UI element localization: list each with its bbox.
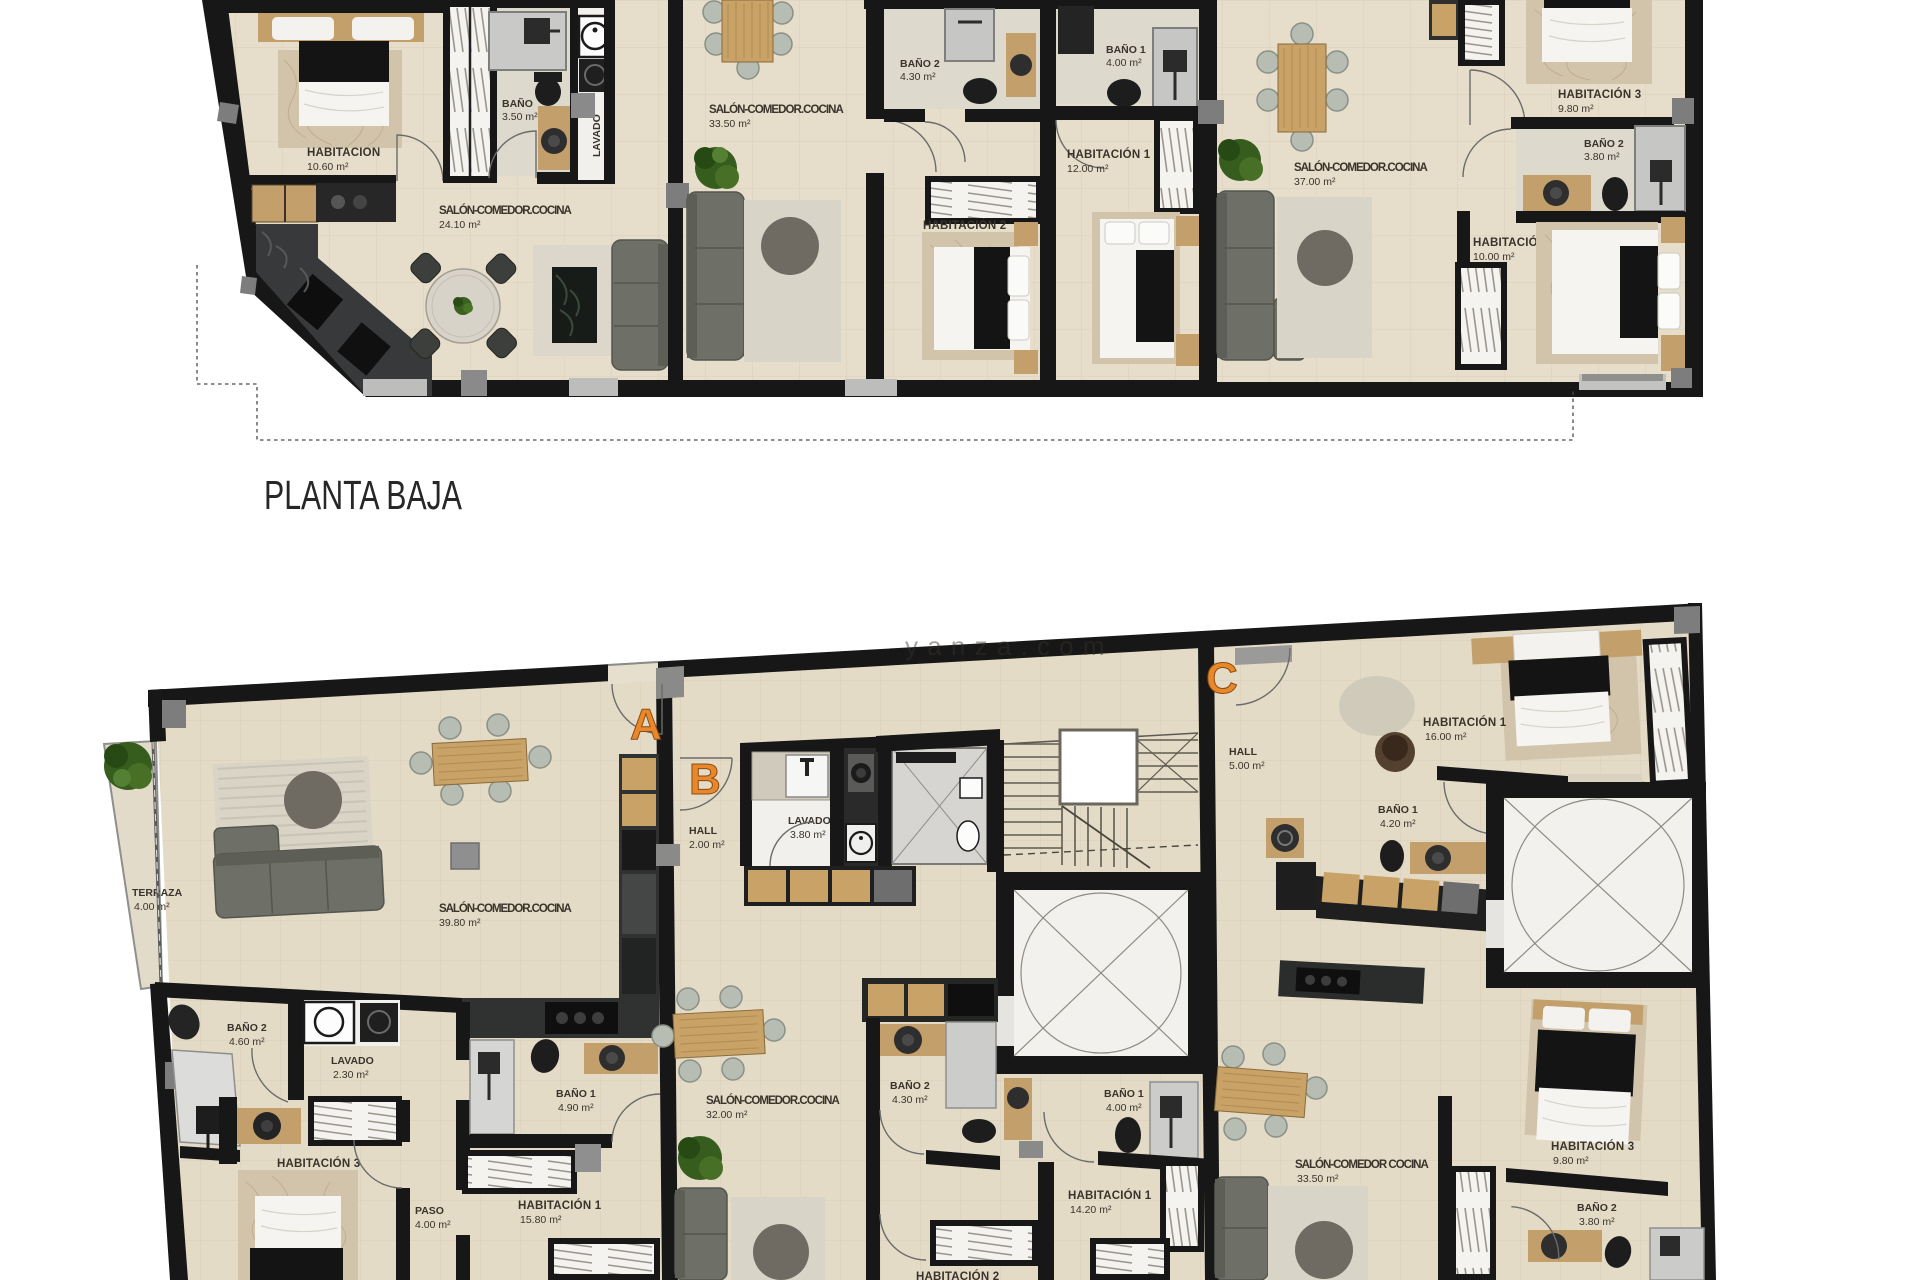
- svg-text:9.80 m²: 9.80 m²: [1553, 1155, 1589, 1167]
- svg-text:37.00 m²: 37.00 m²: [1294, 176, 1336, 188]
- svg-text:SALÓN-COMEDOR.COCINA: SALÓN-COMEDOR.COCINA: [709, 103, 844, 116]
- svg-text:LAVADO: LAVADO: [788, 815, 831, 827]
- svg-text:2.00 m²: 2.00 m²: [689, 839, 725, 851]
- svg-text:A: A: [630, 700, 662, 749]
- svg-text:PASO: PASO: [415, 1205, 444, 1217]
- svg-text:SALÓN-COMEDOR.COCINA: SALÓN-COMEDOR.COCINA: [439, 204, 572, 217]
- svg-text:SALÓN-COMEDOR COCINA: SALÓN-COMEDOR COCINA: [1295, 1158, 1429, 1171]
- svg-text:SALÓN-COMEDOR.COCINA: SALÓN-COMEDOR.COCINA: [706, 1094, 840, 1107]
- svg-text:4.90 m²: 4.90 m²: [558, 1102, 594, 1114]
- svg-text:LAVADO: LAVADO: [591, 114, 603, 157]
- svg-text:y a n z a . c o m: y a n z a . c o m: [905, 631, 1106, 661]
- svg-text:4.00 m²: 4.00 m²: [1106, 57, 1142, 69]
- svg-text:HABITACIÓN 1: HABITACIÓN 1: [1423, 716, 1507, 729]
- svg-text:32.00 m²: 32.00 m²: [706, 1109, 748, 1121]
- svg-text:39.80 m²: 39.80 m²: [439, 917, 481, 929]
- svg-text:BAÑO 2: BAÑO 2: [227, 1021, 267, 1034]
- svg-text:BAÑO 2: BAÑO 2: [1577, 1201, 1617, 1214]
- svg-text:12.00 m²: 12.00 m²: [1067, 163, 1109, 175]
- svg-text:BAÑO 2: BAÑO 2: [900, 57, 940, 70]
- svg-text:3.50 m²: 3.50 m²: [502, 111, 538, 123]
- svg-text:BAÑO 1: BAÑO 1: [1106, 43, 1146, 56]
- svg-text:C: C: [1206, 654, 1238, 703]
- svg-text:33.50 m²: 33.50 m²: [709, 118, 751, 130]
- svg-text:SALÓN-COMEDOR.COCINA: SALÓN-COMEDOR.COCINA: [439, 902, 572, 915]
- svg-text:4.00 m²: 4.00 m²: [1106, 1102, 1142, 1114]
- svg-text:14.20 m²: 14.20 m²: [1070, 1204, 1112, 1216]
- svg-text:BAÑO 1: BAÑO 1: [1378, 803, 1418, 816]
- svg-text:4.30 m²: 4.30 m²: [892, 1094, 928, 1106]
- svg-text:HABITACIÓN 1: HABITACIÓN 1: [1067, 148, 1151, 161]
- svg-text:B: B: [689, 755, 721, 804]
- svg-text:HABITACIÓN 2: HABITACIÓN 2: [923, 219, 1006, 232]
- svg-text:10.60 m²: 10.60 m²: [307, 161, 349, 173]
- svg-text:2.30 m²: 2.30 m²: [333, 1069, 369, 1081]
- svg-text:3.80 m²: 3.80 m²: [1579, 1216, 1615, 1228]
- svg-text:9.80 m²: 9.80 m²: [1558, 103, 1594, 115]
- svg-text:24.10 m²: 24.10 m²: [439, 219, 481, 231]
- svg-text:3.80 m²: 3.80 m²: [1584, 151, 1620, 163]
- svg-text:HABITACIÓN 3: HABITACIÓN 3: [1551, 1140, 1634, 1153]
- svg-text:4.00 m²: 4.00 m²: [134, 901, 170, 913]
- svg-text:HABITACIÓN 1: HABITACIÓN 1: [1068, 1189, 1152, 1202]
- svg-text:4.60 m²: 4.60 m²: [229, 1036, 265, 1048]
- svg-text:PLANTA BAJA: PLANTA BAJA: [264, 472, 462, 518]
- svg-text:10.00 m²: 10.00 m²: [1473, 251, 1515, 263]
- svg-text:BAÑO: BAÑO: [502, 97, 533, 110]
- svg-text:HABITACIÓN 2: HABITACIÓN 2: [916, 1270, 999, 1280]
- svg-text:HABITACIÓN 3: HABITACIÓN 3: [277, 1157, 360, 1170]
- svg-text:BAÑO 1: BAÑO 1: [556, 1087, 596, 1100]
- svg-text:BAÑO 2: BAÑO 2: [1584, 137, 1624, 150]
- svg-text:HALL: HALL: [1229, 746, 1258, 758]
- svg-text:3.80 m²: 3.80 m²: [790, 829, 826, 841]
- svg-text:15.80 m²: 15.80 m²: [520, 1214, 562, 1226]
- svg-text:BAÑO 1: BAÑO 1: [1104, 1087, 1144, 1100]
- svg-text:HALL: HALL: [689, 825, 718, 837]
- svg-text:5.00 m²: 5.00 m²: [1229, 760, 1265, 772]
- svg-text:4.00 m²: 4.00 m²: [415, 1219, 451, 1231]
- svg-text:16.00 m²: 16.00 m²: [1425, 731, 1467, 743]
- svg-text:HABITACION: HABITACION: [307, 147, 380, 159]
- svg-text:HABITACIÓN 1: HABITACIÓN 1: [518, 1199, 602, 1212]
- svg-text:BAÑO 2: BAÑO 2: [890, 1079, 930, 1092]
- svg-text:33.50 m²: 33.50 m²: [1297, 1173, 1339, 1185]
- svg-text:LAVADO: LAVADO: [331, 1055, 374, 1067]
- svg-text:SALÓN-COMEDOR.COCINA: SALÓN-COMEDOR.COCINA: [1294, 161, 1428, 174]
- svg-text:4.20 m²: 4.20 m²: [1380, 818, 1416, 830]
- svg-text:4.30 m²: 4.30 m²: [900, 71, 936, 83]
- svg-text:HABITACIÓN 3: HABITACIÓN 3: [1558, 88, 1641, 101]
